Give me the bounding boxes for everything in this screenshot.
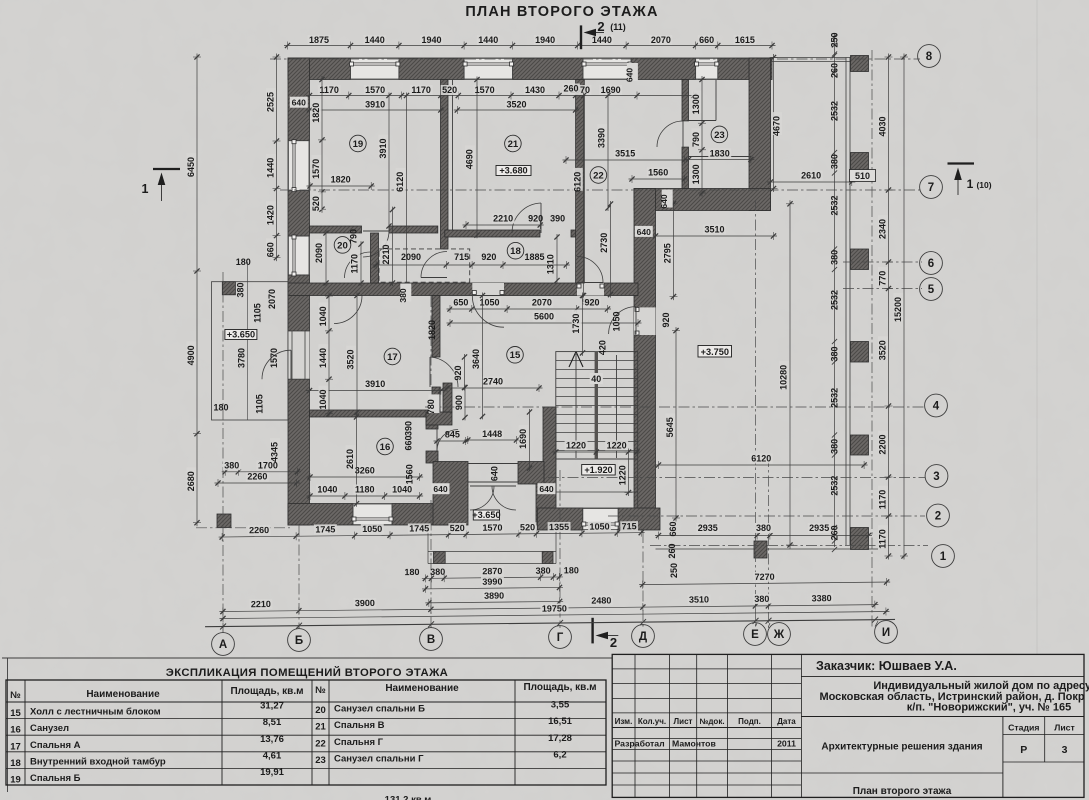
svg-text:23: 23 bbox=[714, 130, 725, 141]
svg-text:2210: 2210 bbox=[381, 244, 391, 264]
svg-text:1300: 1300 bbox=[691, 94, 701, 114]
svg-text:6,2: 6,2 bbox=[553, 749, 566, 760]
svg-text:1570: 1570 bbox=[475, 85, 495, 95]
svg-text:Р: Р bbox=[1020, 744, 1027, 756]
svg-text:Кол.уч.: Кол.уч. bbox=[638, 717, 666, 726]
svg-text:+3.650: +3.650 bbox=[472, 510, 500, 520]
svg-text:16: 16 bbox=[10, 725, 21, 736]
svg-text:Лист: Лист bbox=[1054, 723, 1075, 733]
svg-text:520: 520 bbox=[450, 523, 465, 533]
svg-text:260: 260 bbox=[667, 543, 677, 558]
svg-text:2525: 2525 bbox=[266, 92, 276, 112]
svg-text:В: В bbox=[427, 634, 435, 646]
svg-text:1440: 1440 bbox=[266, 158, 276, 178]
svg-text:250: 250 bbox=[669, 563, 679, 578]
svg-text:1300: 1300 bbox=[691, 164, 701, 184]
svg-text:660: 660 bbox=[699, 35, 714, 45]
svg-text:1875: 1875 bbox=[309, 35, 329, 45]
svg-text:1050: 1050 bbox=[362, 524, 382, 534]
svg-text:2480: 2480 bbox=[591, 595, 611, 605]
svg-text:Санузел спальни Г: Санузел спальни Г bbox=[334, 753, 424, 764]
svg-text:23: 23 bbox=[315, 755, 326, 766]
svg-text:1570: 1570 bbox=[269, 348, 279, 368]
svg-text:19750: 19750 bbox=[542, 603, 567, 613]
svg-text:920: 920 bbox=[453, 365, 463, 380]
svg-text:920: 920 bbox=[584, 298, 599, 308]
svg-text:6450: 6450 bbox=[186, 157, 196, 177]
svg-text:2: 2 bbox=[935, 511, 941, 523]
svg-text:13,76: 13,76 bbox=[260, 734, 284, 745]
svg-text:2532: 2532 bbox=[830, 290, 840, 310]
svg-text:18: 18 bbox=[10, 758, 21, 769]
svg-text:4: 4 bbox=[933, 401, 940, 413]
svg-text:1170: 1170 bbox=[411, 85, 431, 95]
svg-text:845: 845 bbox=[445, 430, 460, 440]
svg-text:А: А bbox=[219, 639, 227, 651]
svg-text:790: 790 bbox=[349, 229, 359, 244]
svg-text:1040: 1040 bbox=[317, 485, 337, 495]
svg-text:4,61: 4,61 bbox=[263, 750, 282, 761]
svg-text:2935: 2935 bbox=[698, 523, 718, 533]
svg-text:22: 22 bbox=[315, 738, 326, 749]
svg-text:920: 920 bbox=[528, 214, 543, 224]
svg-text:1: 1 bbox=[940, 551, 947, 563]
svg-text:10280: 10280 bbox=[779, 365, 789, 390]
svg-text:1448: 1448 bbox=[482, 429, 502, 439]
svg-text:131,2 кв.м: 131,2 кв.м bbox=[385, 795, 432, 800]
svg-text:380: 380 bbox=[830, 346, 840, 361]
svg-text:1440: 1440 bbox=[478, 35, 498, 45]
svg-text:2090: 2090 bbox=[314, 243, 324, 263]
svg-text:1105: 1105 bbox=[252, 303, 262, 323]
svg-text:Е: Е bbox=[751, 629, 759, 641]
svg-text:2200: 2200 bbox=[878, 434, 888, 454]
svg-text:15: 15 bbox=[510, 350, 521, 361]
svg-text:3: 3 bbox=[933, 471, 939, 483]
svg-text:770: 770 bbox=[878, 271, 888, 286]
svg-text:380: 380 bbox=[235, 282, 245, 297]
svg-text:1040: 1040 bbox=[318, 389, 328, 409]
svg-text:Разработал: Разработал bbox=[615, 739, 665, 749]
svg-text:640: 640 bbox=[433, 484, 448, 494]
svg-text:1170: 1170 bbox=[878, 490, 888, 510]
svg-text:2340: 2340 bbox=[878, 219, 888, 239]
svg-text:2610: 2610 bbox=[801, 171, 821, 181]
svg-text:1745: 1745 bbox=[315, 524, 335, 534]
svg-text:2070: 2070 bbox=[651, 35, 671, 45]
svg-text:1170: 1170 bbox=[350, 254, 360, 274]
svg-text:1570: 1570 bbox=[482, 523, 502, 533]
svg-text:1745: 1745 bbox=[409, 523, 429, 533]
svg-text:780: 780 bbox=[426, 399, 436, 414]
svg-text:Площадь, кв.м: Площадь, кв.м bbox=[523, 682, 596, 693]
svg-text:1220: 1220 bbox=[607, 441, 627, 451]
svg-text:3900: 3900 bbox=[355, 598, 375, 608]
svg-text:1820: 1820 bbox=[427, 320, 437, 340]
svg-text:к/п. "Новорижский", уч. № 165: к/п. "Новорижский", уч. № 165 bbox=[907, 702, 1071, 714]
svg-text:Подп.: Подп. bbox=[738, 717, 761, 726]
svg-text:260: 260 bbox=[830, 63, 840, 78]
svg-text:15200: 15200 bbox=[893, 297, 903, 322]
svg-text:16,51: 16,51 bbox=[548, 716, 572, 727]
svg-text:1050: 1050 bbox=[589, 521, 609, 531]
svg-text:2740: 2740 bbox=[483, 377, 503, 387]
svg-text:6: 6 bbox=[928, 258, 934, 270]
svg-text:4670: 4670 bbox=[772, 116, 782, 136]
svg-text:3: 3 bbox=[1062, 744, 1068, 756]
svg-text:3510: 3510 bbox=[704, 225, 724, 235]
svg-text:2532: 2532 bbox=[830, 101, 840, 121]
svg-text:Лист: Лист bbox=[674, 717, 693, 726]
svg-text:№: № bbox=[10, 690, 21, 701]
svg-text:5600: 5600 bbox=[534, 312, 554, 322]
svg-text:1430: 1430 bbox=[525, 85, 545, 95]
svg-text:20: 20 bbox=[337, 240, 348, 251]
svg-text:4345: 4345 bbox=[270, 442, 280, 462]
svg-text:180: 180 bbox=[404, 567, 419, 577]
svg-text:1615: 1615 bbox=[735, 35, 755, 45]
svg-text:260: 260 bbox=[563, 84, 578, 94]
svg-text:Санузел: Санузел bbox=[30, 723, 69, 734]
svg-text:180: 180 bbox=[564, 565, 579, 575]
svg-text:2260: 2260 bbox=[247, 472, 267, 482]
svg-text:380: 380 bbox=[830, 250, 840, 265]
svg-text:1570: 1570 bbox=[365, 85, 385, 95]
svg-text:3910: 3910 bbox=[365, 100, 385, 110]
svg-text:2210: 2210 bbox=[493, 214, 513, 224]
svg-text:ЭКСПЛИКАЦИЯ ПОМЕЩЕНИЙ ВТОРОГ: ЭКСПЛИКАЦИЯ ПОМЕЩЕНИЙ ВТОРОГО ЭТАЖА bbox=[166, 666, 448, 679]
svg-text:3890: 3890 bbox=[484, 591, 504, 601]
svg-text:3,55: 3,55 bbox=[551, 700, 570, 711]
svg-text:Архитектурные решения здания: Архитектурные решения здания bbox=[821, 742, 982, 753]
svg-text:Ж: Ж bbox=[773, 629, 785, 641]
svg-text:1040: 1040 bbox=[318, 306, 328, 326]
svg-text:3910: 3910 bbox=[365, 379, 385, 389]
svg-text:Спальня В: Спальня В bbox=[334, 720, 385, 731]
svg-text:900: 900 bbox=[454, 395, 464, 410]
svg-text:ПЛАН ВТОРОГО ЭТАЖА: ПЛАН ВТОРОГО ЭТАЖА bbox=[465, 4, 658, 20]
svg-text:5: 5 bbox=[928, 284, 935, 296]
svg-text:420: 420 bbox=[597, 340, 607, 355]
svg-text:Мамонтов: Мамонтов bbox=[672, 739, 716, 749]
svg-text:640: 640 bbox=[637, 227, 652, 237]
svg-text:1105: 1105 bbox=[255, 394, 265, 414]
svg-text:5645: 5645 bbox=[665, 417, 675, 437]
svg-text:2610: 2610 bbox=[345, 449, 355, 469]
svg-text:1570: 1570 bbox=[311, 159, 321, 179]
svg-text:Стадия: Стадия bbox=[1008, 723, 1039, 733]
svg-text:3260: 3260 bbox=[355, 466, 375, 476]
svg-text:1820: 1820 bbox=[311, 103, 321, 123]
svg-text:+1.920: +1.920 bbox=[584, 465, 612, 475]
svg-text:1420: 1420 bbox=[266, 205, 276, 225]
svg-text:3510: 3510 bbox=[689, 594, 709, 604]
svg-text:1: 1 bbox=[967, 177, 974, 191]
svg-text:8,51: 8,51 bbox=[263, 717, 282, 728]
svg-text:2090: 2090 bbox=[401, 252, 421, 262]
svg-text:21: 21 bbox=[315, 722, 326, 733]
svg-text:№: № bbox=[315, 685, 326, 696]
svg-text:Изм.: Изм. bbox=[615, 717, 633, 726]
svg-text:Спальня А: Спальня А bbox=[30, 740, 81, 751]
svg-text:2870: 2870 bbox=[482, 566, 502, 576]
svg-text:8: 8 bbox=[926, 51, 933, 63]
svg-text:180: 180 bbox=[236, 257, 251, 267]
svg-text:1040: 1040 bbox=[392, 485, 412, 495]
svg-text:660: 660 bbox=[404, 435, 414, 450]
svg-text:19: 19 bbox=[353, 139, 364, 150]
svg-text:640: 640 bbox=[539, 484, 554, 494]
svg-text:380: 380 bbox=[756, 523, 771, 533]
svg-text:2011: 2011 bbox=[777, 739, 796, 749]
svg-text:1940: 1940 bbox=[421, 35, 441, 45]
svg-text:2532: 2532 bbox=[830, 195, 840, 215]
svg-text:1220: 1220 bbox=[566, 441, 586, 451]
svg-text:2532: 2532 bbox=[830, 476, 840, 496]
svg-text:380: 380 bbox=[830, 154, 840, 169]
svg-text:390: 390 bbox=[404, 421, 414, 436]
svg-text:2070: 2070 bbox=[532, 298, 552, 308]
svg-text:Наименование: Наименование bbox=[86, 689, 160, 700]
svg-text:1885: 1885 bbox=[524, 252, 544, 262]
svg-text:Д: Д bbox=[639, 631, 647, 643]
svg-text:3520: 3520 bbox=[506, 100, 526, 110]
svg-text:6120: 6120 bbox=[572, 172, 582, 192]
svg-text:1440: 1440 bbox=[318, 348, 328, 368]
svg-text:390: 390 bbox=[550, 214, 565, 224]
svg-text:Спальня Г: Спальня Г bbox=[334, 737, 384, 748]
svg-text:1: 1 bbox=[142, 182, 149, 196]
svg-text:2532: 2532 bbox=[830, 388, 840, 408]
svg-text:260: 260 bbox=[830, 525, 840, 540]
svg-text:1310: 1310 bbox=[546, 254, 556, 274]
svg-text:20: 20 bbox=[315, 705, 326, 716]
svg-text:380: 380 bbox=[830, 439, 840, 454]
svg-text:1050: 1050 bbox=[612, 311, 622, 331]
svg-text:1940: 1940 bbox=[535, 35, 555, 45]
svg-text:Санузел спальни Б: Санузел спальни Б bbox=[334, 704, 425, 715]
svg-text:2680: 2680 bbox=[186, 471, 196, 491]
svg-text:7270: 7270 bbox=[755, 572, 775, 582]
svg-text:Г: Г bbox=[557, 632, 564, 644]
svg-text:2730: 2730 bbox=[599, 233, 609, 253]
svg-text:2935: 2935 bbox=[809, 523, 829, 533]
svg-text:520: 520 bbox=[311, 196, 321, 211]
svg-text:2: 2 bbox=[610, 635, 617, 650]
svg-text:Спальня Б: Спальня Б bbox=[30, 773, 81, 784]
svg-text:22: 22 bbox=[593, 170, 604, 181]
svg-text:180: 180 bbox=[213, 403, 228, 413]
svg-text:640: 640 bbox=[489, 466, 499, 481]
svg-text:3780: 3780 bbox=[237, 348, 247, 368]
svg-text:17,28: 17,28 bbox=[548, 733, 572, 744]
svg-text:Холл с лестничным блоком: Холл с лестничным блоком bbox=[30, 707, 161, 718]
svg-text:380: 380 bbox=[754, 594, 769, 604]
svg-text:2795: 2795 bbox=[662, 243, 672, 263]
svg-text:510: 510 bbox=[855, 171, 870, 181]
svg-text:16: 16 bbox=[380, 442, 391, 453]
svg-text:19: 19 bbox=[10, 775, 21, 786]
svg-text:715: 715 bbox=[454, 252, 469, 262]
svg-text:6120: 6120 bbox=[751, 454, 771, 464]
svg-text:15: 15 bbox=[10, 708, 21, 719]
svg-text:520: 520 bbox=[442, 85, 457, 95]
svg-text:380: 380 bbox=[430, 567, 445, 577]
svg-text:250: 250 bbox=[830, 32, 840, 47]
svg-text:2: 2 bbox=[597, 19, 604, 34]
svg-text:2210: 2210 bbox=[251, 599, 271, 609]
svg-text:6120: 6120 bbox=[395, 172, 405, 192]
svg-text:3380: 3380 bbox=[812, 593, 832, 603]
svg-text:Наименование: Наименование bbox=[385, 683, 459, 694]
svg-text:19,91: 19,91 bbox=[260, 767, 284, 778]
svg-text:3910: 3910 bbox=[378, 138, 388, 158]
svg-text:380: 380 bbox=[398, 288, 408, 303]
svg-text:1690: 1690 bbox=[518, 429, 528, 449]
svg-text:380: 380 bbox=[224, 460, 239, 470]
svg-text:640: 640 bbox=[624, 68, 634, 83]
svg-text:40: 40 bbox=[591, 374, 601, 384]
svg-text:650: 650 bbox=[453, 298, 468, 308]
svg-text:640: 640 bbox=[659, 194, 669, 209]
svg-text:(10): (10) bbox=[976, 180, 991, 190]
svg-text:1560: 1560 bbox=[405, 464, 415, 484]
svg-text:1730: 1730 bbox=[571, 314, 581, 334]
svg-text:2070: 2070 bbox=[267, 289, 277, 309]
svg-text:21: 21 bbox=[508, 139, 519, 150]
svg-text:31,27: 31,27 bbox=[260, 701, 284, 712]
svg-text:1355: 1355 bbox=[549, 522, 569, 532]
svg-text:+3.750: +3.750 bbox=[701, 347, 729, 357]
svg-text:1220: 1220 bbox=[618, 465, 628, 485]
svg-text:380: 380 bbox=[536, 566, 551, 576]
svg-text:3520: 3520 bbox=[878, 340, 888, 360]
svg-text:1180: 1180 bbox=[355, 485, 375, 495]
svg-text:660: 660 bbox=[668, 521, 678, 536]
svg-text:Дата: Дата bbox=[777, 717, 796, 726]
svg-text:Площадь, кв.м: Площадь, кв.м bbox=[230, 686, 303, 697]
svg-text:4690: 4690 bbox=[465, 149, 475, 169]
svg-text:1440: 1440 bbox=[365, 35, 385, 45]
svg-text:17: 17 bbox=[10, 741, 21, 752]
svg-text:1440: 1440 bbox=[592, 35, 612, 45]
svg-text:+3.650: +3.650 bbox=[227, 329, 255, 339]
svg-text:+3.680: +3.680 bbox=[499, 165, 527, 175]
svg-text:920: 920 bbox=[481, 252, 496, 262]
svg-text:3390: 3390 bbox=[597, 128, 607, 148]
svg-text:3640: 3640 bbox=[471, 349, 481, 369]
svg-text:4900: 4900 bbox=[186, 345, 196, 365]
svg-text:План второго этажа: План второго этажа bbox=[853, 786, 952, 797]
svg-text:18: 18 bbox=[510, 246, 521, 257]
svg-text:И: И bbox=[882, 627, 890, 639]
svg-text:1820: 1820 bbox=[331, 175, 351, 185]
svg-text:7: 7 bbox=[928, 182, 934, 194]
svg-text:Б: Б bbox=[295, 635, 303, 647]
svg-text:№док.: №док. bbox=[699, 717, 724, 726]
svg-text:640: 640 bbox=[292, 98, 307, 108]
svg-text:520: 520 bbox=[520, 522, 535, 532]
svg-text:4030: 4030 bbox=[878, 116, 888, 136]
svg-text:715: 715 bbox=[622, 521, 637, 531]
svg-text:920: 920 bbox=[661, 312, 671, 327]
svg-text:3990: 3990 bbox=[482, 577, 502, 587]
svg-text:Заказчик: Юшваев У.А.: Заказчик: Юшваев У.А. bbox=[816, 659, 957, 673]
svg-text:3515: 3515 bbox=[615, 148, 635, 158]
svg-text:3520: 3520 bbox=[346, 349, 356, 369]
svg-text:1830: 1830 bbox=[710, 148, 730, 158]
svg-text:1170: 1170 bbox=[878, 529, 888, 549]
svg-text:Внутренний входной тамбур: Внутренний входной тамбур bbox=[30, 756, 166, 767]
svg-text:2260: 2260 bbox=[249, 525, 269, 535]
svg-text:(11): (11) bbox=[610, 22, 626, 32]
svg-text:660: 660 bbox=[266, 242, 276, 257]
svg-text:17: 17 bbox=[387, 352, 398, 363]
svg-text:1560: 1560 bbox=[648, 167, 668, 177]
svg-text:790: 790 bbox=[691, 132, 701, 147]
